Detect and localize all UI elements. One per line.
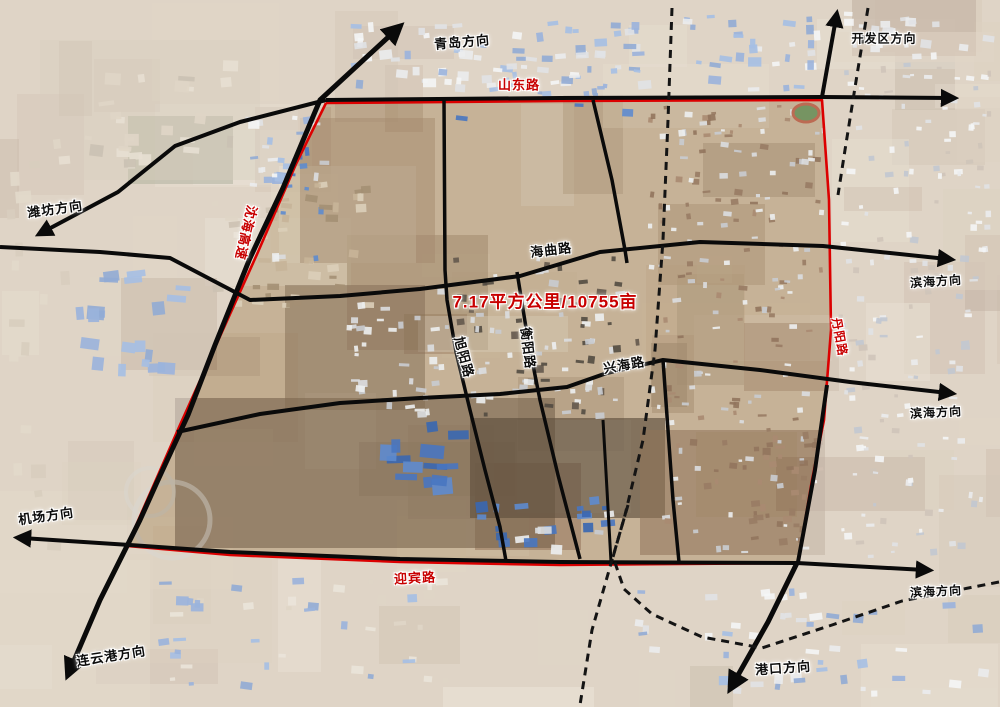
road-shandong-road-east <box>822 97 950 98</box>
map-canvas <box>0 0 1000 707</box>
satellite-planning-map: 青岛方向开发区方向山东路潍坊方向沈海高速海曲路7.17平方公里/10755亩旭阳… <box>0 0 1000 707</box>
